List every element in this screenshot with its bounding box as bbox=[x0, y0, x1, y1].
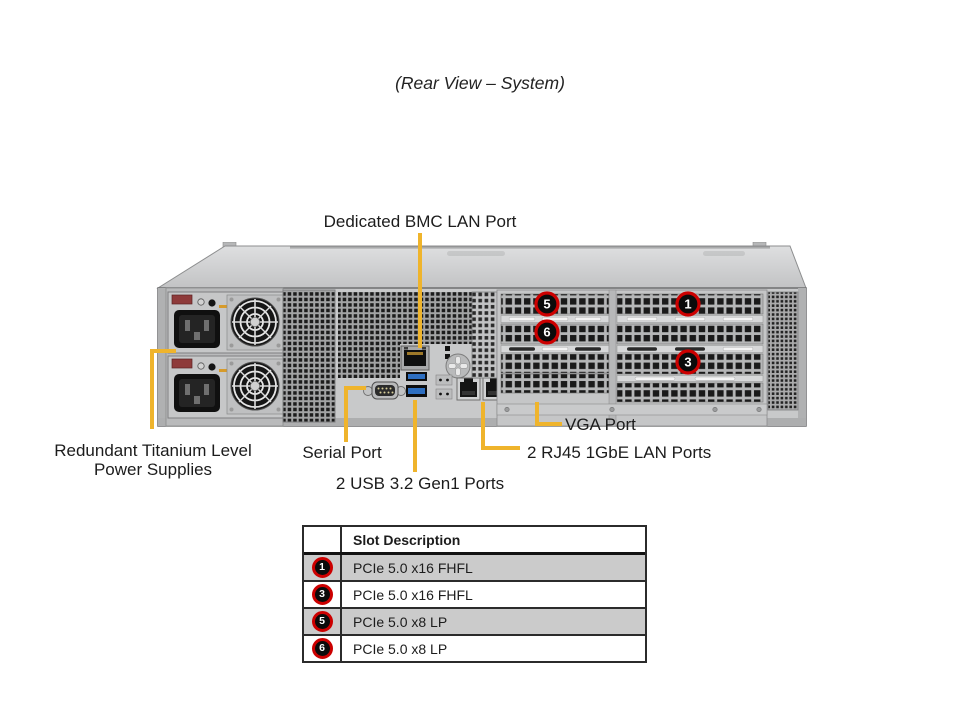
table-header-badge-cell bbox=[304, 527, 342, 552]
io-mesh bbox=[338, 344, 400, 378]
chassis-right-edge bbox=[798, 288, 806, 426]
io-mesh bbox=[338, 292, 472, 344]
table-row: 3 PCIe 5.0 x16 FHFL bbox=[304, 580, 645, 607]
server-rear-illustration: 5 6 1 3 bbox=[155, 242, 815, 437]
lid-gasket bbox=[290, 246, 770, 249]
label-power-supplies-line1: Redundant Titanium Level bbox=[38, 441, 268, 460]
badge-slot-1: 1 bbox=[677, 293, 699, 315]
callout-line-psu-v bbox=[150, 349, 154, 429]
lan-port-1 bbox=[457, 378, 480, 400]
right-vent-strip bbox=[768, 292, 798, 410]
bmc-lan-port bbox=[401, 346, 429, 370]
table-row-badge-cell: 5 bbox=[304, 609, 342, 634]
knockout-plate bbox=[446, 354, 470, 378]
label-vga-port: VGA Port bbox=[565, 415, 636, 435]
table-row: 6 PCIe 5.0 x8 LP bbox=[304, 634, 645, 661]
badge-slot-3: 3 bbox=[312, 584, 333, 605]
psu-wire bbox=[219, 305, 227, 308]
psu-fan bbox=[227, 295, 283, 350]
slot-bracket bbox=[617, 376, 763, 382]
page: (Rear View – System) bbox=[0, 0, 960, 720]
label-serial-port: Serial Port bbox=[297, 443, 387, 463]
badge-slot-5: 5 bbox=[536, 293, 558, 315]
label-power-supplies-line2: Power Supplies bbox=[38, 460, 268, 479]
badge-slot-5: 5 bbox=[312, 611, 333, 632]
svg-text:6: 6 bbox=[543, 325, 550, 340]
vent-strip bbox=[617, 324, 763, 344]
callout-line-serial-v bbox=[344, 386, 348, 442]
io-marker bbox=[445, 346, 450, 351]
vent-strip bbox=[501, 374, 609, 393]
table-row: 1 PCIe 5.0 x16 FHFL bbox=[304, 552, 645, 580]
psu-wire bbox=[219, 369, 227, 372]
label-bmc-lan-port: Dedicated BMC LAN Port bbox=[270, 212, 570, 232]
lid-indent bbox=[703, 251, 745, 256]
callout-line-vga-h bbox=[535, 422, 562, 426]
vent-strip bbox=[501, 354, 609, 373]
table-row-badge-cell: 6 bbox=[304, 636, 342, 661]
slot-bracket bbox=[501, 346, 609, 353]
svg-text:3: 3 bbox=[684, 355, 691, 370]
table-row-badge-cell: 1 bbox=[304, 555, 342, 580]
psu-fan bbox=[227, 359, 283, 414]
table-header-row: Slot Description bbox=[304, 527, 645, 552]
psu-2 bbox=[168, 356, 290, 418]
table-row-description: PCIe 5.0 x16 FHFL bbox=[342, 555, 645, 580]
callout-line-lan-v bbox=[481, 402, 485, 450]
svg-text:1: 1 bbox=[684, 297, 691, 312]
psu-latch bbox=[172, 359, 192, 368]
table-header-label: Slot Description bbox=[342, 527, 645, 552]
vent-strip bbox=[617, 383, 763, 402]
psu-latch bbox=[172, 295, 192, 304]
vent-panel bbox=[283, 290, 335, 422]
table-row-description: PCIe 5.0 x8 LP bbox=[342, 636, 645, 661]
callout-line-lan-h bbox=[481, 446, 520, 450]
badge-slot-3: 3 bbox=[677, 351, 699, 373]
badge-slot-1: 1 bbox=[312, 557, 333, 578]
table-row-badge-cell: 3 bbox=[304, 582, 342, 607]
lid-indent bbox=[447, 251, 505, 256]
svg-text:5: 5 bbox=[543, 297, 550, 312]
label-power-supplies: Redundant Titanium Level Power Supplies bbox=[38, 441, 268, 479]
slot-bracket bbox=[617, 316, 763, 323]
table-row-description: PCIe 5.0 x16 FHFL bbox=[342, 582, 645, 607]
badge-slot-6: 6 bbox=[536, 321, 558, 343]
callout-line-usb bbox=[413, 400, 417, 472]
label-usb-ports: 2 USB 3.2 Gen1 Ports bbox=[320, 474, 520, 494]
psu-1 bbox=[168, 292, 290, 353]
slot-description-table: Slot Description 1 PCIe 5.0 x16 FHFL 3 P… bbox=[302, 525, 647, 663]
table-row: 5 PCIe 5.0 x8 LP bbox=[304, 607, 645, 634]
callout-line-serial-h bbox=[346, 386, 366, 390]
slot-bracket bbox=[501, 316, 609, 323]
chassis-left-edge bbox=[158, 288, 166, 426]
figure-title: (Rear View – System) bbox=[0, 73, 960, 94]
table-row-description: PCIe 5.0 x8 LP bbox=[342, 609, 645, 634]
callout-line-bmc bbox=[418, 233, 422, 348]
riser-vent-column bbox=[472, 292, 497, 378]
badge-slot-6: 6 bbox=[312, 638, 333, 659]
label-lan-ports: 2 RJ45 1GbE LAN Ports bbox=[527, 443, 711, 463]
